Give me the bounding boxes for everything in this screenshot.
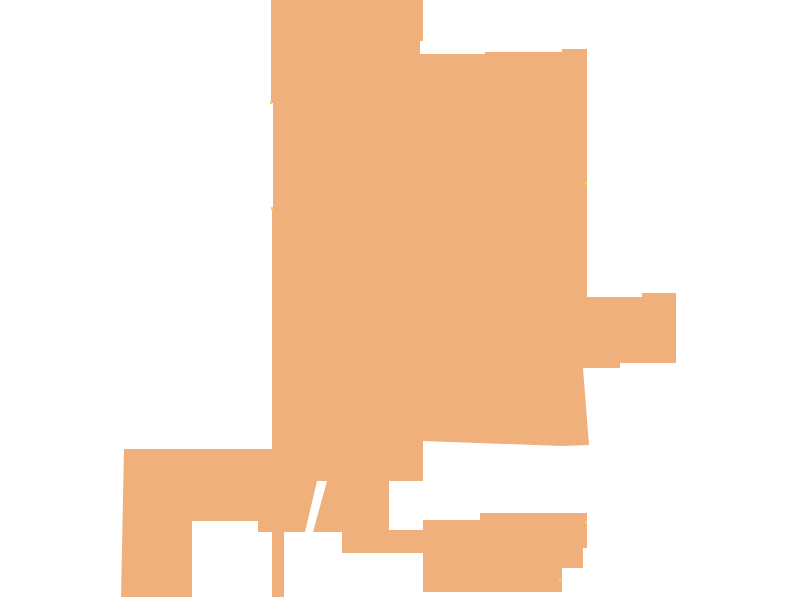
map-stage — [0, 0, 800, 600]
corner-speck — [559, 579, 561, 582]
corner-speck — [271, 207, 273, 210]
boundary-region-polygon — [121, 0, 676, 597]
corner-speck — [585, 182, 587, 185]
corner-speck — [585, 521, 587, 524]
corner-speck — [270, 101, 272, 104]
map-canvas — [0, 0, 800, 600]
